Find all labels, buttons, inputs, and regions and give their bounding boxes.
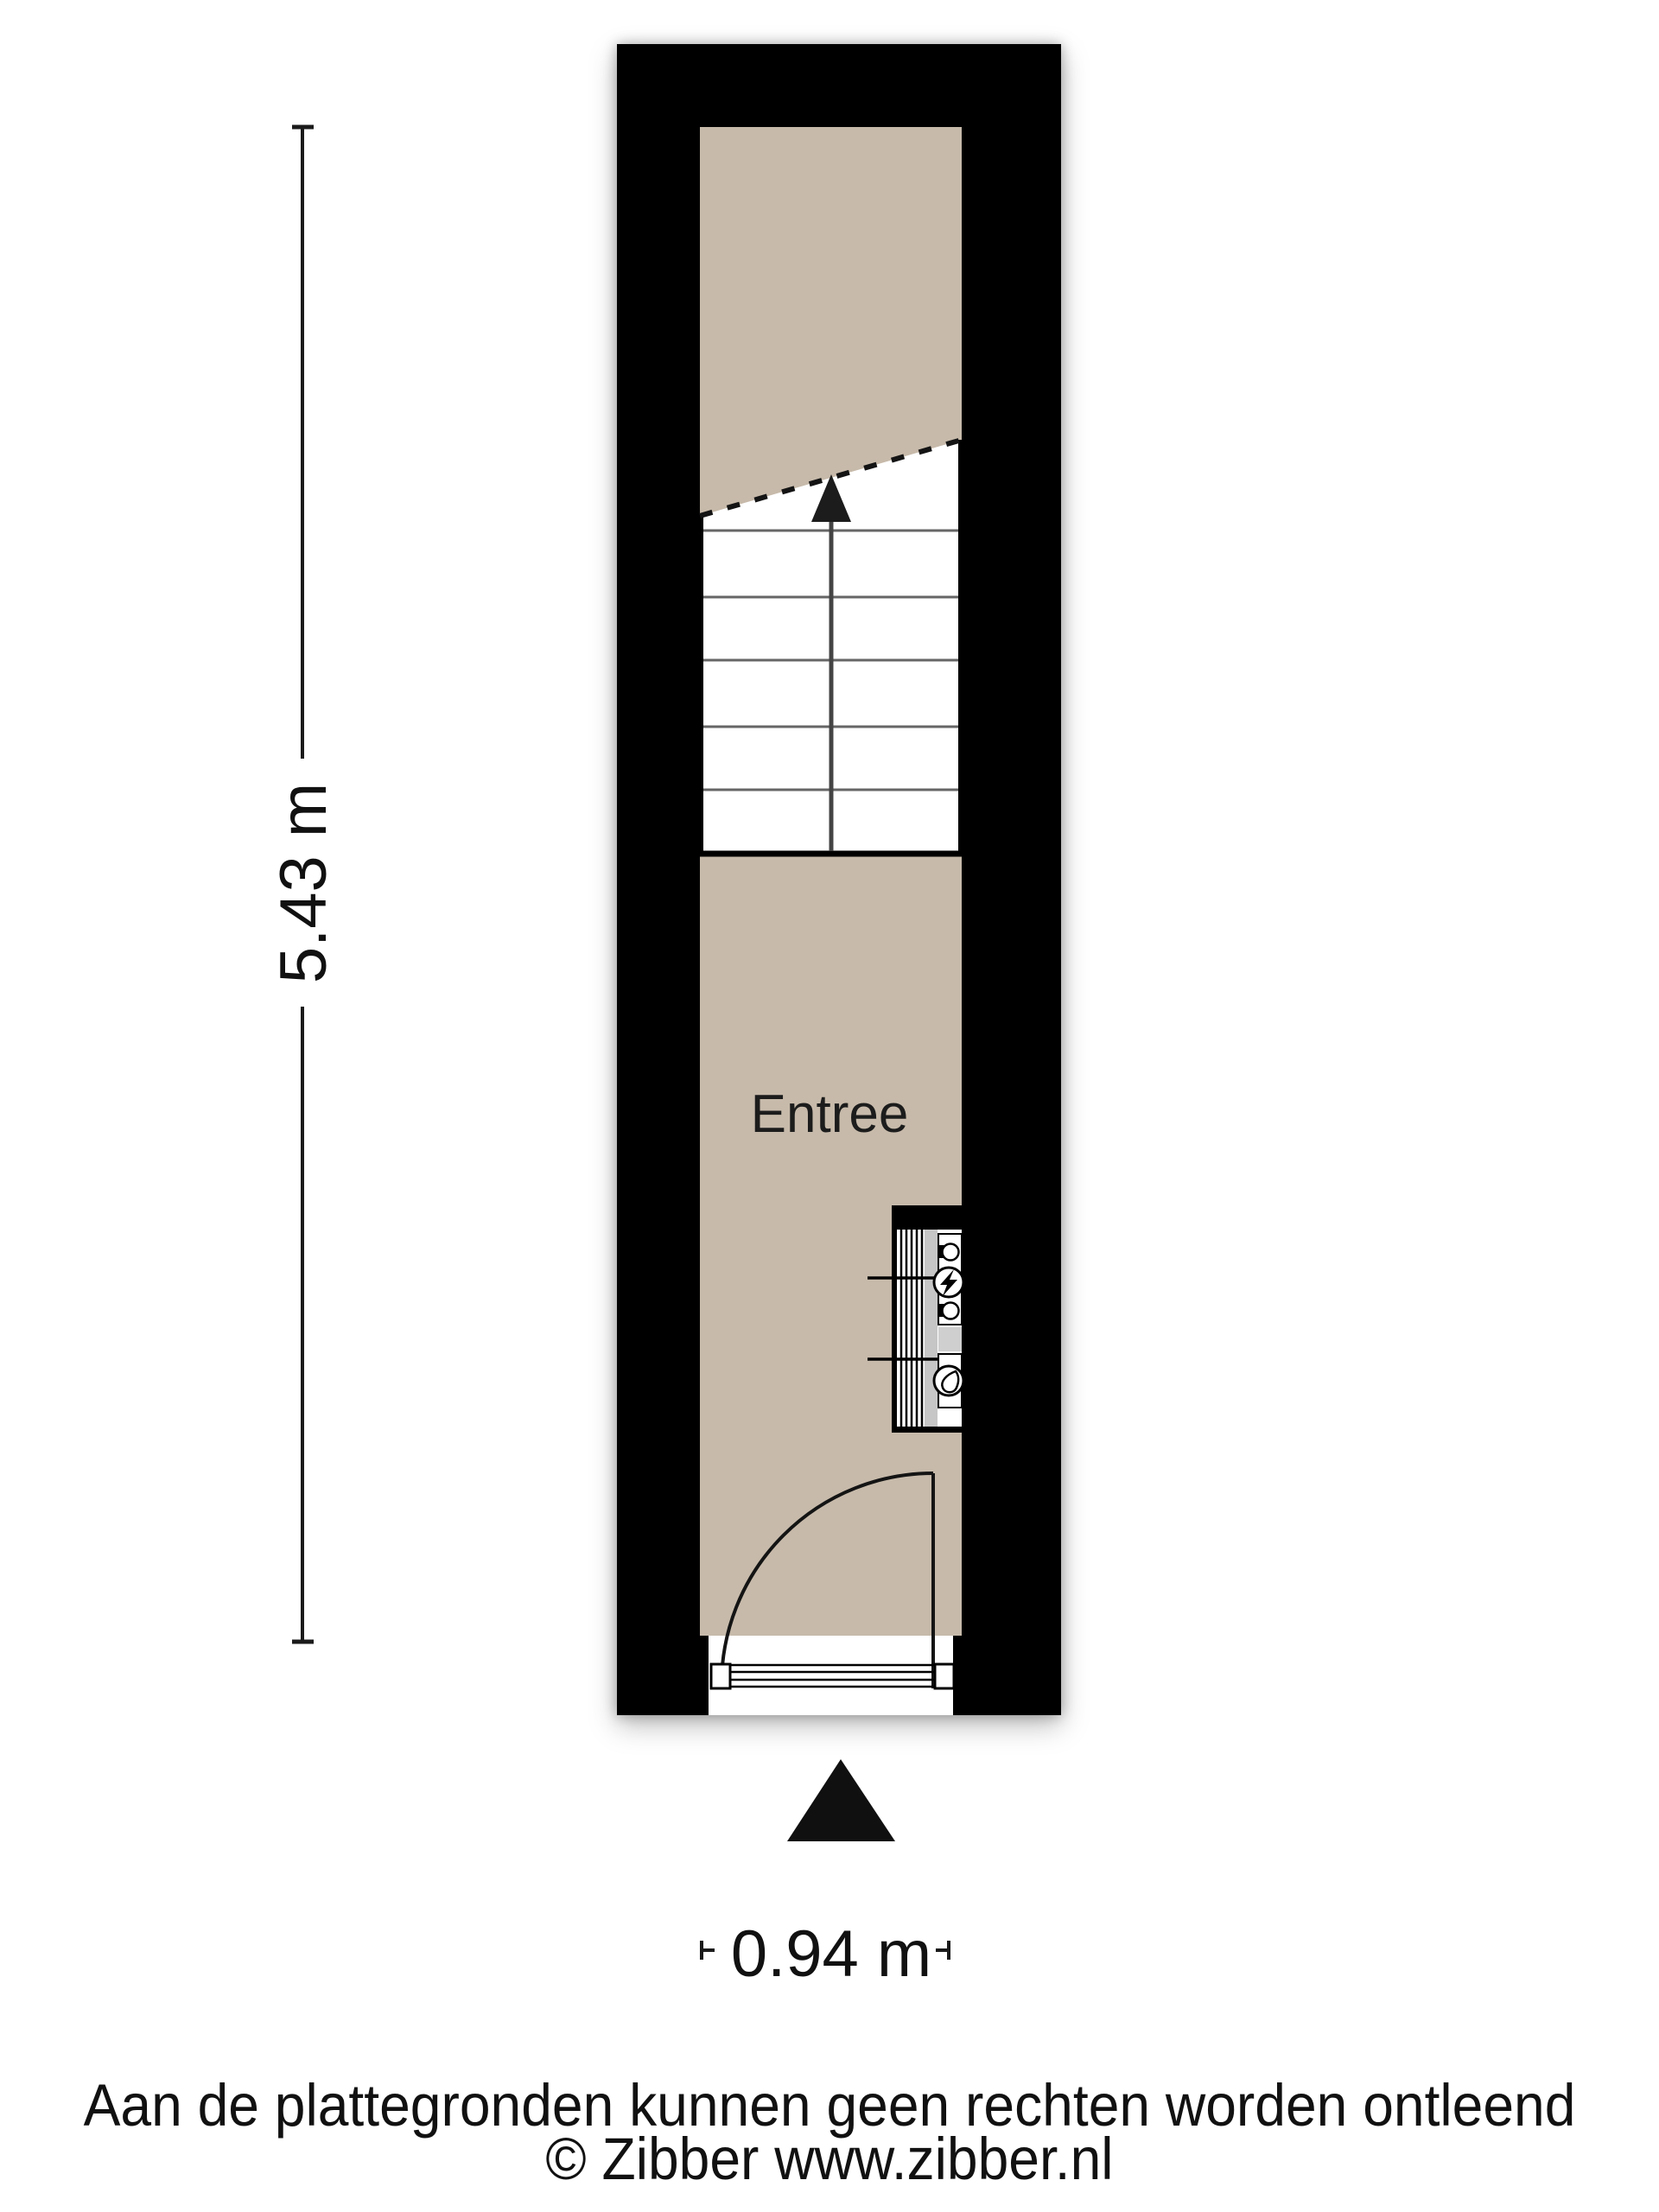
entrance-recess <box>709 1636 953 1715</box>
height-dimension: 5.43 m <box>267 127 340 1642</box>
electricity-meter-icon <box>934 1268 963 1297</box>
entrance-arrow-icon <box>787 1759 895 1841</box>
height-dimension-label: 5.43 m <box>267 783 340 983</box>
floor-plan-svg: Entree 5.43 m 0.94 m <box>0 0 1659 2212</box>
cupboard-gray-panel <box>925 1230 938 1427</box>
floorplan-page: Entree 5.43 m 0.94 m Aan de plattegronde… <box>0 0 1659 2212</box>
width-dimension: 0.94 m <box>702 1917 949 1991</box>
meter-small-dial <box>943 1303 959 1319</box>
room-label-entree: Entree <box>751 1084 909 1144</box>
width-dimension-label: 0.94 m <box>731 1917 931 1991</box>
door-jamb <box>935 1664 954 1688</box>
water-meter-icon <box>934 1366 963 1395</box>
door-jamb <box>711 1664 730 1688</box>
copyright-text: © Zibber www.zibber.nl <box>58 2129 1601 2189</box>
meter-small-dial <box>943 1244 959 1261</box>
meter-gap-panel <box>938 1327 962 1351</box>
